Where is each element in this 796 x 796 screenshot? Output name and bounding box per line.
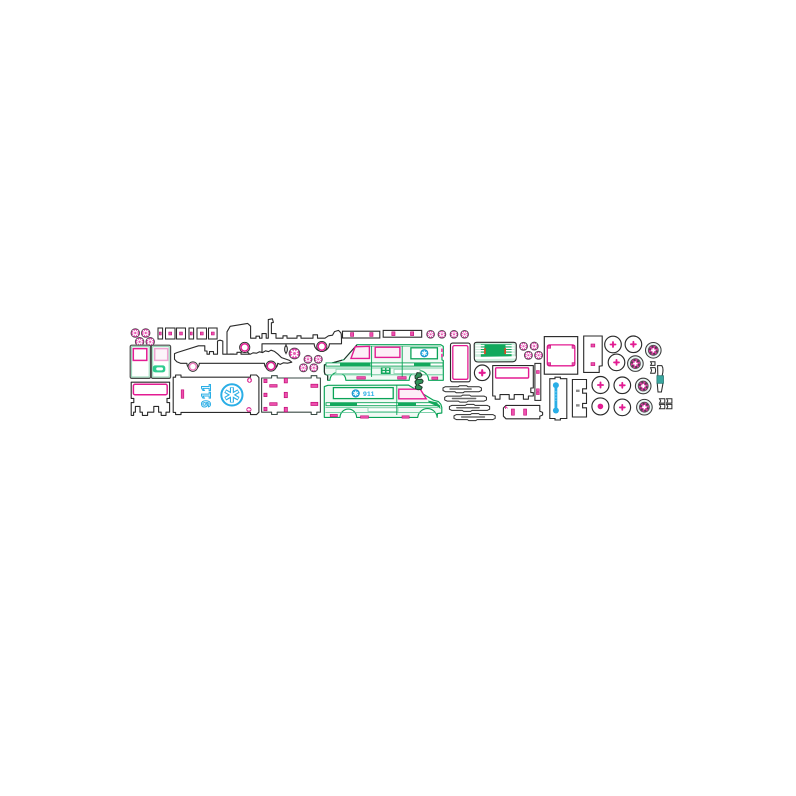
svg-text:911: 911 [363,391,375,398]
svg-text:911: 911 [199,383,214,408]
